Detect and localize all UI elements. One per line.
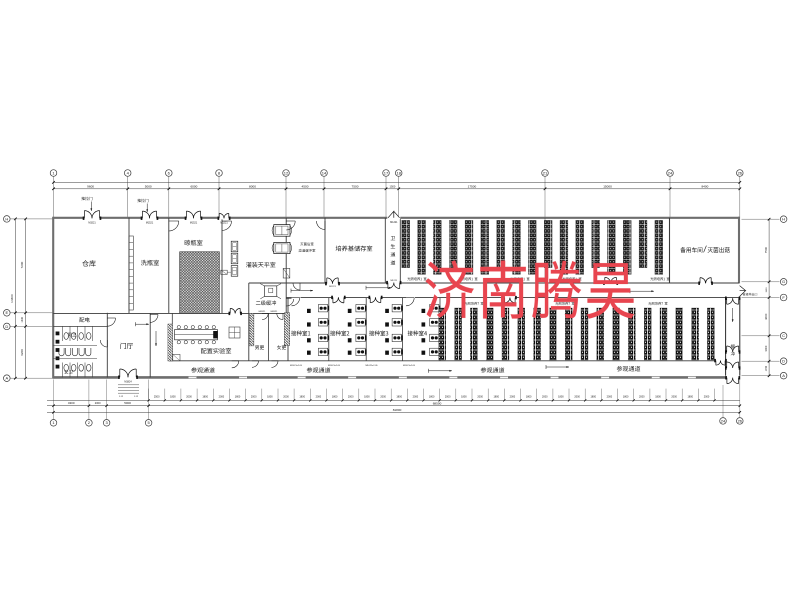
svg-text:1800: 1800 [364,395,370,398]
svg-text:7500: 7500 [352,184,359,188]
svg-text:24: 24 [721,418,726,423]
svg-text:M0921: M0921 [271,311,278,313]
svg-text:M1521: M1521 [190,222,198,225]
svg-text:2000: 2000 [607,395,613,398]
svg-text:3000: 3000 [764,345,768,351]
svg-text:E: E [5,310,8,315]
svg-text:M1221: M1221 [390,221,398,224]
svg-text:C: C [782,333,785,338]
svg-text:1800: 1800 [688,395,694,398]
svg-text:1900: 1900 [766,287,768,293]
svg-text:1:12: 1:12 [119,396,124,398]
svg-text:2000: 2000 [704,395,710,398]
svg-text:M1221: M1221 [329,286,336,288]
svg-text:2000: 2000 [251,395,257,398]
svg-text:1300: 1300 [21,316,24,322]
svg-text:17500: 17500 [468,184,477,188]
svg-text:2000: 2000 [186,395,192,398]
svg-text:1800: 1800 [526,395,532,398]
svg-text:26: 26 [738,170,743,175]
svg-text:14: 14 [322,170,327,175]
svg-text:M1221: M1221 [220,222,228,225]
svg-text:1800: 1800 [461,395,467,398]
svg-text:1800: 1800 [396,395,402,398]
svg-text:1800: 1800 [332,395,338,398]
svg-text:M1521: M1521 [146,222,154,225]
svg-text:M1021x2.05: M1021x2.05 [365,365,378,367]
svg-text:68500: 68500 [433,401,442,405]
svg-text:1700: 1700 [765,365,768,371]
svg-text:M0921: M0921 [259,311,266,313]
svg-text:12: 12 [284,170,289,175]
svg-text:1800: 1800 [170,395,176,398]
svg-text:H: H [782,217,785,222]
svg-text:M1021x2.05: M1021x2.05 [403,365,416,367]
svg-text:1800: 1800 [235,395,241,398]
svg-text:A: A [782,373,785,378]
svg-text:4600: 4600 [764,313,768,320]
svg-text:A: A [5,376,8,381]
svg-text:81800: 81800 [393,408,402,412]
svg-text:15000: 15000 [603,184,612,188]
svg-text:1800: 1800 [299,395,305,398]
svg-text:26: 26 [738,418,743,423]
svg-text:2000: 2000 [413,395,419,398]
svg-text:2000: 2000 [95,401,101,405]
svg-text:8000: 8000 [249,184,256,188]
svg-text:1800: 1800 [591,395,597,398]
svg-text:2000: 2000 [574,395,580,398]
svg-text:21: 21 [543,170,548,175]
svg-text:M1021x2.05: M1021x2.05 [328,365,341,367]
svg-text:2000: 2000 [639,395,645,398]
svg-text:M1021x2.05: M1021x2.05 [290,365,303,367]
svg-text:1:12: 1:12 [134,396,139,398]
svg-text:1800: 1800 [623,395,629,398]
svg-text:2000: 2000 [380,395,386,398]
svg-text:5000: 5000 [124,401,131,405]
svg-text:8400: 8400 [701,184,708,188]
svg-text:M1221: M1221 [390,280,397,282]
svg-text:5000: 5000 [145,184,152,188]
svg-text:1800: 1800 [494,395,500,398]
svg-text:2000: 2000 [445,395,451,398]
svg-text:4300: 4300 [68,401,75,405]
svg-text:2000: 2000 [219,395,225,398]
svg-text:G: G [782,279,785,284]
svg-text:2000: 2000 [542,395,548,398]
svg-text:D: D [5,324,8,329]
svg-text:2500: 2500 [154,395,160,398]
svg-text:1800: 1800 [429,395,435,398]
svg-text:6200: 6200 [20,349,24,356]
svg-text:4500: 4500 [302,184,309,188]
svg-text:2000: 2000 [671,395,677,398]
svg-text:1500: 1500 [390,184,396,188]
svg-text:7200: 7200 [20,261,24,268]
svg-text:M1521: M1521 [88,222,96,225]
svg-text:17: 17 [384,170,389,175]
svg-text:6000: 6000 [190,184,197,188]
svg-text:H: H [5,216,8,221]
svg-text:14400: 14400 [10,294,14,303]
svg-text:1800: 1800 [202,395,208,398]
svg-text:D: D [782,359,785,364]
svg-text:2000: 2000 [477,395,483,398]
svg-text:M1824: M1824 [124,381,132,384]
svg-text:24: 24 [668,170,673,175]
svg-text:2000: 2000 [348,395,354,398]
svg-text:7500: 7500 [764,246,768,253]
svg-text:2000: 2000 [316,395,322,398]
svg-text:2000: 2000 [510,395,516,398]
svg-text:1800: 1800 [558,395,564,398]
svg-text:18: 18 [396,170,401,175]
svg-text:1800: 1800 [267,395,273,398]
svg-text:2000: 2000 [283,395,289,398]
svg-text:1800: 1800 [655,395,661,398]
svg-text:9600: 9600 [87,184,94,188]
